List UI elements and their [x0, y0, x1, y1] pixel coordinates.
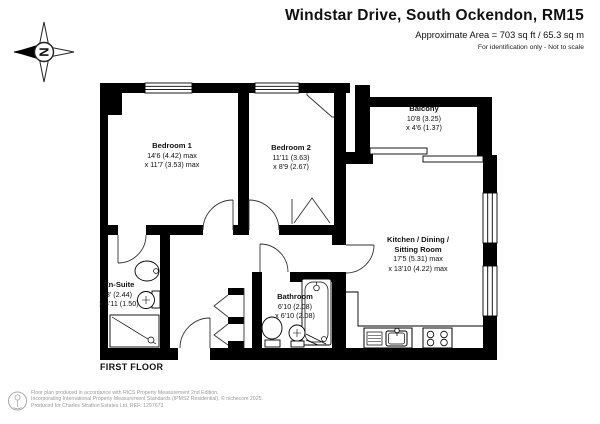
room-dimension: 14'6 (4.42) max — [112, 151, 232, 160]
room-dimension: x 6'10 (2.08) — [255, 311, 335, 320]
footer-line: Produced for Charles Stratton Estates Lt… — [31, 403, 263, 409]
room-label-balcony: Balcony 10'8 (3.25) x 4'6 (1.37) — [364, 104, 484, 132]
room-dimension: x 13'10 (4.22) max — [358, 264, 478, 273]
room-label-bathroom: Bathroom 6'10 (2.08) x 6'10 (2.08) — [255, 292, 335, 320]
room-name: Bedroom 1 — [112, 141, 232, 151]
bedroom2-corner-cupboard — [307, 93, 334, 117]
room-name: Kitchen / Dining / — [358, 235, 478, 245]
bedroom1-door — [203, 200, 233, 230]
kitchen-tap — [395, 328, 400, 333]
room-label-kitchen-dining-sitting: Kitchen / Dining / Sitting Room 17'5 (5.… — [358, 235, 478, 273]
room-dimension: 6'10 (2.08) — [255, 302, 335, 311]
room-dimension: x 4'6 (1.37) — [364, 123, 484, 132]
room-dimension: x 4'11 (1.50) — [79, 299, 159, 308]
room-dimension: 11'11 (3.63) — [231, 153, 351, 162]
floor-title: FIRST FLOOR — [100, 362, 163, 372]
room-name: En-Suite — [79, 280, 159, 290]
room-name: Bedroom 2 — [231, 143, 351, 153]
room-dimension: 10'8 (3.25) — [364, 114, 484, 123]
room-dimension: 8' (2.44) — [79, 290, 159, 299]
room-dimension: x 11'7 (3.53) max — [112, 160, 232, 169]
floor-plan-drawing: N — [0, 0, 600, 424]
kitchen-hob — [423, 328, 452, 348]
bath-tap — [314, 285, 320, 291]
room-label-en-suite: En-Suite 8' (2.44) x 4'11 (1.50) — [79, 280, 159, 308]
identification-disclaimer: For identification only - Not to scale — [478, 44, 584, 51]
compass-north-label: N — [37, 47, 52, 56]
footer-line: Incorporating International Property Mea… — [31, 396, 263, 402]
room-name: Sitting Room — [358, 245, 478, 255]
kitchen-counter — [346, 292, 483, 326]
room-dimension: 17'5 (5.31) max — [358, 254, 478, 263]
room-label-bedroom-1: Bedroom 1 14'6 (4.42) max x 11'7 (3.53) … — [112, 141, 232, 169]
ensuite-door — [118, 235, 146, 263]
bedroom2-door — [249, 200, 279, 230]
nichecom-logo-icon — [9, 392, 27, 410]
room-name: Bathroom — [255, 292, 335, 302]
bedroom2-wardrobe — [292, 198, 330, 224]
front-door — [180, 318, 210, 348]
floorplan-page: N — [0, 0, 600, 424]
compass-icon: N — [14, 22, 74, 82]
kitchen-fixtures — [346, 292, 483, 348]
room-label-bedroom-2: Bedroom 2 11'11 (3.63) x 8'9 (2.67) — [231, 143, 351, 171]
bathroom-door — [260, 244, 288, 272]
page-title: Windstar Drive, South Ockendon, RM15 — [285, 7, 584, 25]
room-dimension: x 8'9 (2.67) — [231, 162, 351, 171]
footer-disclaimer: Floor plan produced in accordance with R… — [31, 390, 263, 409]
approximate-area: Approximate Area = 703 sq ft / 65.3 sq m — [415, 30, 584, 40]
room-name: Balcony — [364, 104, 484, 114]
